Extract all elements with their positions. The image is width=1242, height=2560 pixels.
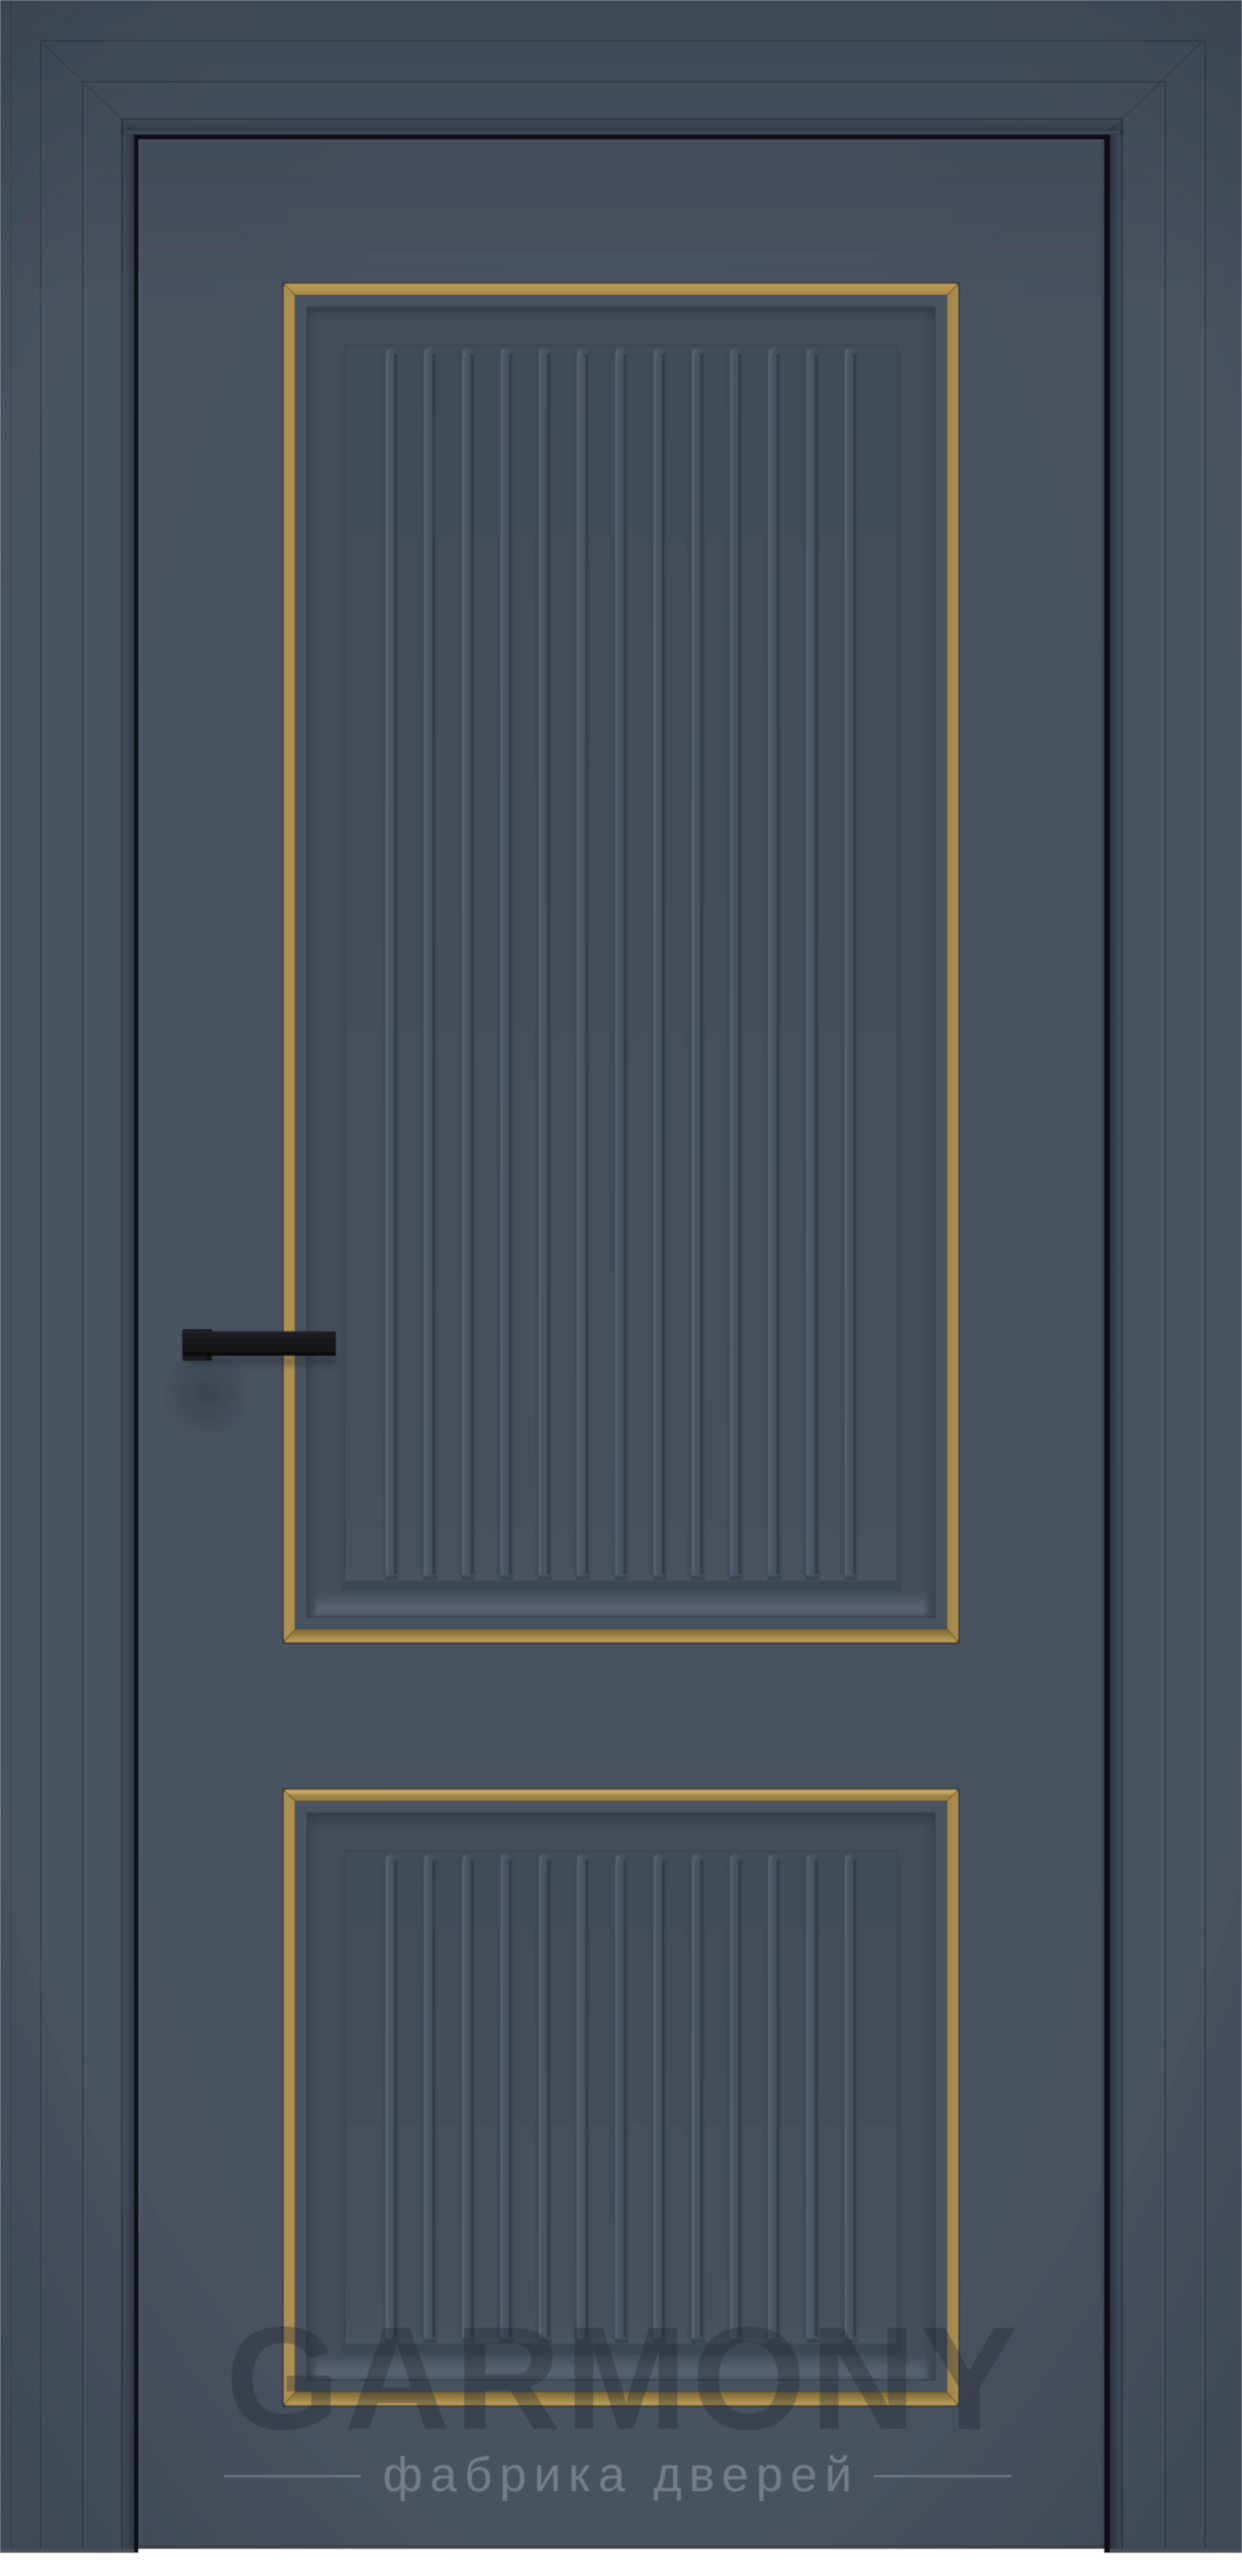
svg-text:GARMONY: GARMONY <box>225 2297 1022 2461</box>
svg-text:фабрика дверей: фабрика дверей <box>383 2448 860 2502</box>
